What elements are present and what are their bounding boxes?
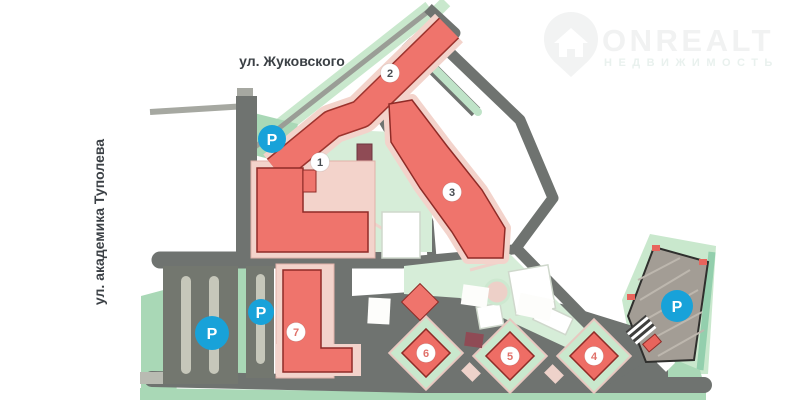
building-marker-4[interactable]: 4 — [585, 347, 604, 366]
svg-text:7[interactable]: 7 — [293, 327, 299, 339]
svg-text:4[interactable]: 4 — [591, 351, 598, 363]
watermark-tagline: НЕДВИЖИМОСТЬ — [604, 57, 779, 69]
svg-text:6[interactable]: 6 — [423, 348, 429, 360]
building-marker-2[interactable]: 2 — [381, 64, 400, 83]
svg-text:P[interactable]: P — [267, 132, 278, 149]
parking-marker-north[interactable]: P — [258, 125, 286, 153]
svg-text:1[interactable]: 1 — [317, 157, 323, 169]
building-marker-6[interactable]: 6 — [417, 344, 436, 363]
parking-marker-narrow-lot[interactable]: P — [248, 299, 274, 325]
street-label-tupoleva: ул. академика Туполева — [91, 139, 107, 305]
svg-text:P[interactable]: P — [256, 305, 267, 322]
svg-text:2[interactable]: 2 — [387, 68, 393, 80]
parking-marker-structure[interactable]: P — [661, 290, 693, 322]
road-west-light — [150, 106, 247, 112]
site-plan: ONREALT НЕДВИЖИМОСТЬ — [0, 0, 797, 400]
svg-text:5[interactable]: 5 — [507, 351, 513, 363]
onrealt-watermark: ONREALT НЕДВИЖИМОСТЬ — [544, 12, 779, 77]
parking-marker-large-lot[interactable]: P — [195, 316, 229, 350]
school-building — [382, 212, 420, 258]
svg-text:P[interactable]: P — [672, 299, 683, 316]
watermark-brand: ONREALT — [602, 23, 774, 58]
building-marker-1[interactable]: 1 — [311, 153, 330, 172]
street-label-zhukovskogo: ул. Жуковского — [239, 53, 345, 69]
utility-building — [357, 144, 372, 161]
building-marker-5[interactable]: 5 — [501, 347, 520, 366]
building-marker-3[interactable]: 3 — [443, 183, 462, 202]
house-pin-icon — [544, 12, 598, 77]
building-marker-7[interactable]: 7 — [287, 323, 306, 342]
svg-text:3[interactable]: 3 — [449, 187, 455, 199]
svg-text:P[interactable]: P — [207, 326, 218, 343]
